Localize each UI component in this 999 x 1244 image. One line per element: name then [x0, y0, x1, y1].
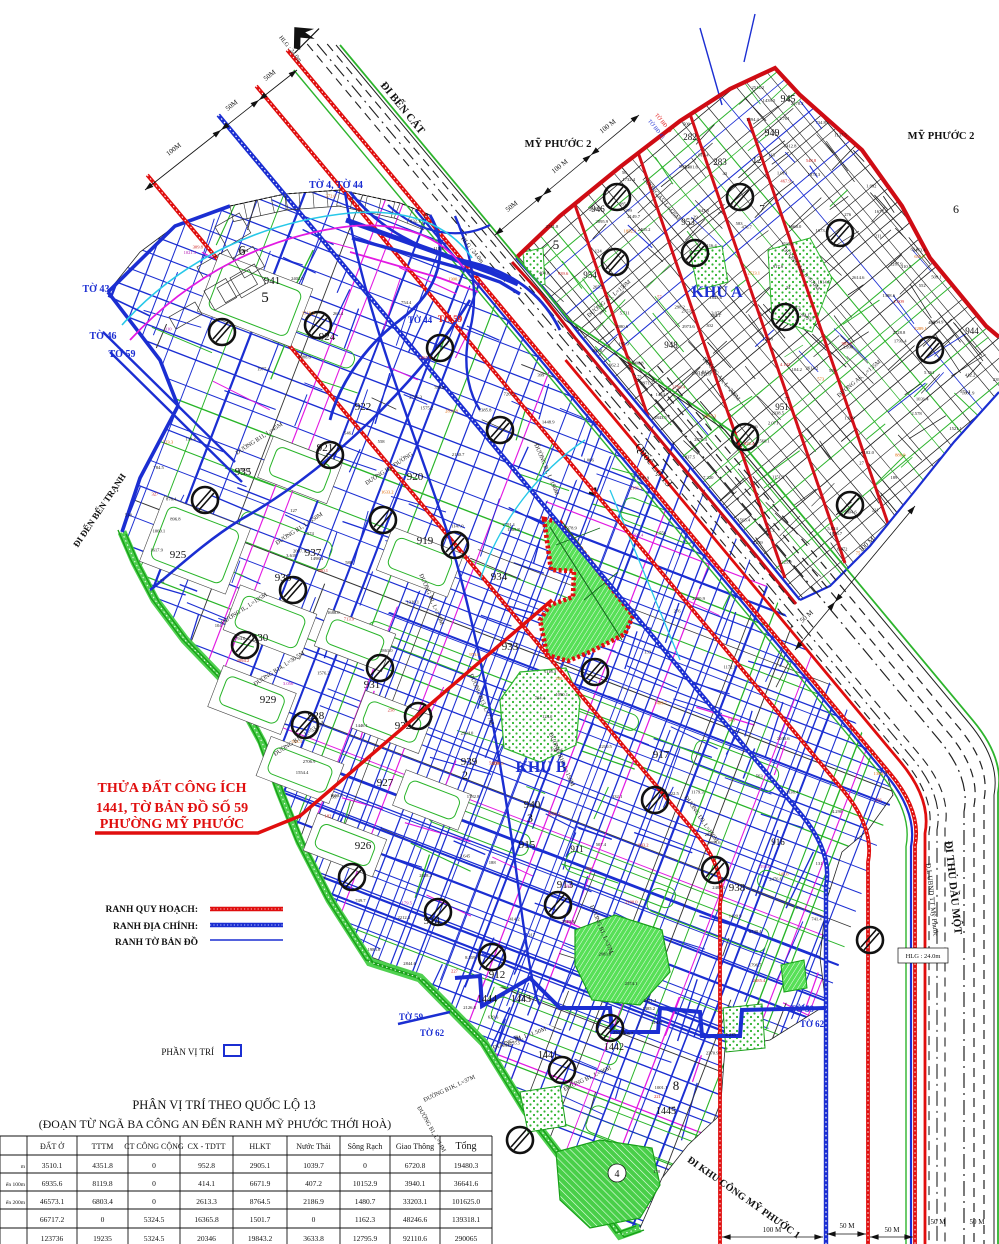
svg-text:2405.2: 2405.2 [638, 227, 651, 232]
svg-text:2.259: 2.259 [752, 540, 763, 545]
svg-text:CX - TDTT: CX - TDTT [187, 1142, 225, 1151]
svg-text:1568.1: 1568.1 [757, 439, 770, 444]
svg-text:6671.9: 6671.9 [250, 1179, 271, 1188]
svg-text:182: 182 [325, 814, 333, 819]
svg-text:188: 188 [489, 860, 497, 865]
svg-text:276: 276 [674, 609, 682, 614]
svg-text:2921.4: 2921.4 [644, 998, 657, 1003]
svg-text:19480.3: 19480.3 [454, 1161, 479, 1170]
svg-text:1300.2: 1300.2 [448, 277, 461, 282]
svg-text:920: 920 [407, 471, 424, 483]
svg-text:917.6: 917.6 [773, 264, 784, 269]
svg-text:399: 399 [537, 372, 545, 377]
svg-text:56: 56 [622, 170, 627, 175]
svg-text:2876.4: 2876.4 [694, 437, 707, 442]
svg-text:588: 588 [345, 560, 353, 565]
svg-text:PHÂN VỊ TRÍ THEO QUỐC LỘ 13: PHÂN VỊ TRÍ THEO QUỐC LỘ 13 [132, 1097, 315, 1112]
svg-text:RANH ĐỊA CHÍNH:: RANH ĐỊA CHÍNH: [113, 920, 198, 932]
svg-text:1732.4: 1732.4 [622, 177, 635, 182]
svg-text:2500.4: 2500.4 [237, 467, 250, 472]
svg-text:1182.0: 1182.0 [861, 450, 874, 455]
svg-text:5: 5 [261, 290, 269, 306]
svg-text:1.092: 1.092 [866, 184, 877, 189]
svg-text:3: 3 [527, 811, 533, 825]
svg-text:1441, TỜ BẢN ĐỒ SỐ 59: 1441, TỜ BẢN ĐỒ SỐ 59 [96, 798, 248, 816]
svg-text:930: 930 [252, 632, 269, 644]
svg-text:1576.2: 1576.2 [317, 671, 330, 676]
svg-text:0: 0 [152, 1197, 156, 1206]
svg-text:m: m [21, 1164, 26, 1170]
svg-text:127: 127 [290, 508, 298, 513]
svg-text:1521.1: 1521.1 [949, 426, 962, 431]
svg-text:917: 917 [653, 749, 670, 761]
svg-text:2149.7: 2149.7 [627, 214, 640, 219]
svg-text:916: 916 [771, 837, 785, 847]
svg-text:2859.8: 2859.8 [445, 408, 458, 413]
svg-text:1446.1: 1446.1 [355, 723, 368, 728]
svg-text:563: 563 [756, 773, 764, 778]
svg-text:3.056: 3.056 [283, 681, 294, 686]
svg-text:1519.2: 1519.2 [302, 310, 315, 315]
svg-text:1006.8: 1006.8 [631, 360, 644, 365]
svg-text:265.2: 265.2 [593, 285, 604, 290]
svg-text:2290.9: 2290.9 [692, 596, 705, 601]
svg-text:12795.9: 12795.9 [353, 1234, 378, 1243]
svg-text:2402.5: 2402.5 [291, 276, 304, 281]
svg-text:ến 100m: ến 100m [6, 1181, 26, 1188]
svg-text:CT CÔNG CỘNG: CT CÔNG CỘNG [124, 1141, 184, 1151]
svg-text:507.4: 507.4 [596, 842, 607, 847]
svg-text:404.8: 404.8 [539, 271, 550, 276]
svg-text:921: 921 [317, 442, 334, 454]
svg-text:34: 34 [786, 285, 791, 290]
svg-text:1.009: 1.009 [894, 299, 905, 304]
svg-text:1021.5: 1021.5 [184, 250, 197, 255]
svg-text:46573.1: 46573.1 [40, 1197, 65, 1206]
svg-text:100 M: 100 M [763, 1226, 782, 1234]
svg-text:12: 12 [753, 155, 762, 165]
svg-text:500: 500 [683, 122, 691, 127]
svg-text:HLKT: HLKT [249, 1142, 270, 1151]
svg-text:5: 5 [553, 237, 560, 252]
svg-text:939.6: 939.6 [558, 271, 569, 276]
svg-text:2130.7: 2130.7 [452, 452, 465, 457]
svg-text:8119.8: 8119.8 [92, 1179, 113, 1188]
svg-text:1782.8: 1782.8 [467, 794, 480, 799]
svg-text:2225.9: 2225.9 [779, 560, 792, 565]
svg-text:734.8: 734.8 [815, 120, 826, 125]
svg-text:282: 282 [683, 132, 697, 142]
svg-text:4.142: 4.142 [780, 362, 791, 367]
svg-text:993.2: 993.2 [679, 164, 690, 169]
svg-text:927: 927 [377, 777, 394, 789]
svg-text:1470.9: 1470.9 [637, 476, 650, 481]
svg-text:123736: 123736 [41, 1234, 64, 1243]
svg-text:66717.2: 66717.2 [40, 1215, 65, 1224]
svg-text:1443: 1443 [511, 994, 531, 1005]
svg-text:221: 221 [654, 1094, 662, 1099]
svg-text:929: 929 [260, 694, 277, 706]
svg-text:934: 934 [491, 571, 508, 583]
svg-text:843.2: 843.2 [638, 843, 649, 848]
svg-text:2578.2: 2578.2 [791, 101, 804, 106]
svg-text:948: 948 [664, 340, 678, 350]
svg-text:1663.3: 1663.3 [330, 793, 343, 798]
svg-text:1073.4: 1073.4 [815, 228, 828, 233]
svg-text:115: 115 [669, 1106, 676, 1111]
svg-text:2028.3: 2028.3 [419, 873, 432, 878]
svg-text:ến 200m: ến 200m [6, 1199, 26, 1206]
svg-text:922: 922 [355, 401, 372, 413]
svg-text:2101.1: 2101.1 [630, 486, 643, 491]
svg-text:940: 940 [524, 799, 541, 811]
svg-text:2973.6: 2973.6 [682, 324, 695, 329]
svg-text:1039.7: 1039.7 [303, 1161, 324, 1170]
svg-text:2370.9: 2370.9 [706, 1051, 719, 1056]
svg-text:124.0: 124.0 [542, 714, 553, 719]
svg-text:912: 912 [489, 969, 506, 981]
svg-text:2929.5: 2929.5 [562, 919, 575, 924]
svg-text:7.220: 7.220 [703, 475, 714, 480]
svg-text:5.711: 5.711 [620, 311, 631, 316]
svg-text:276: 276 [844, 212, 852, 217]
svg-text:239.4: 239.4 [993, 377, 999, 382]
svg-text:1845.6: 1845.6 [709, 295, 722, 300]
svg-text:832.1: 832.1 [410, 219, 421, 224]
svg-text:2971.7: 2971.7 [641, 381, 654, 386]
svg-text:221: 221 [872, 507, 880, 512]
svg-text:10152.9: 10152.9 [353, 1179, 378, 1188]
svg-text:1442: 1442 [604, 1042, 624, 1053]
svg-text:622.5: 622.5 [668, 791, 679, 796]
svg-text:2476.6: 2476.6 [769, 877, 782, 882]
svg-text:1480.7: 1480.7 [355, 1197, 376, 1206]
svg-text:TỜ 44: TỜ 44 [408, 315, 433, 325]
svg-text:139318.1: 139318.1 [452, 1215, 480, 1224]
svg-text:1434.7: 1434.7 [656, 392, 669, 397]
svg-text:1444: 1444 [477, 994, 497, 1005]
svg-text:199: 199 [625, 208, 633, 213]
svg-text:TỜ 4, TỜ 44: TỜ 4, TỜ 44 [309, 179, 363, 191]
svg-text:2088.6: 2088.6 [298, 355, 311, 360]
svg-text:8.559: 8.559 [465, 955, 476, 960]
svg-text:250.7: 250.7 [555, 676, 566, 681]
svg-text:290065: 290065 [455, 1234, 478, 1243]
svg-text:8: 8 [673, 1078, 680, 1093]
svg-text:3.645: 3.645 [460, 853, 471, 858]
svg-text:19843.2: 19843.2 [248, 1234, 273, 1243]
svg-text:1514.5: 1514.5 [817, 280, 830, 285]
svg-text:911: 911 [570, 844, 583, 854]
svg-text:3.072: 3.072 [711, 311, 722, 316]
svg-text:691.4: 691.4 [633, 533, 644, 538]
svg-text:2.578: 2.578 [911, 411, 922, 416]
svg-text:1836.7: 1836.7 [829, 531, 842, 536]
svg-text:4.235: 4.235 [725, 1032, 736, 1037]
svg-text:914: 914 [424, 915, 441, 927]
svg-text:72: 72 [160, 578, 165, 583]
svg-text:ĐẤT Ở: ĐẤT Ở [40, 1141, 65, 1151]
svg-text:915: 915 [519, 839, 536, 851]
svg-text:4351.8: 4351.8 [92, 1161, 113, 1170]
svg-text:662.2: 662.2 [609, 363, 620, 368]
svg-text:1795.9: 1795.9 [781, 242, 794, 247]
svg-text:81.4: 81.4 [910, 247, 919, 252]
svg-text:1565.8: 1565.8 [507, 527, 520, 532]
svg-text:6720.8: 6720.8 [405, 1161, 426, 1170]
svg-text:2895.9: 2895.9 [595, 219, 608, 224]
svg-text:546: 546 [344, 431, 352, 436]
svg-text:1448.9: 1448.9 [542, 420, 555, 425]
svg-text:5.761: 5.761 [924, 370, 935, 375]
svg-text:258: 258 [388, 707, 396, 712]
svg-text:179.5: 179.5 [402, 900, 413, 905]
svg-text:573: 573 [817, 377, 825, 382]
svg-text:2: 2 [462, 768, 468, 782]
svg-text:(ĐOẠN TỪ NGÃ BA CÔNG AN ĐẾN RA: (ĐOẠN TỪ NGÃ BA CÔNG AN ĐẾN RANH MỸ PHƯỚ… [39, 1116, 392, 1131]
svg-text:0: 0 [101, 1215, 105, 1224]
svg-text:467.9: 467.9 [780, 179, 791, 184]
svg-text:2190.0: 2190.0 [625, 900, 638, 905]
svg-text:1554.4: 1554.4 [296, 770, 309, 775]
svg-text:2693.7: 2693.7 [589, 207, 602, 212]
svg-text:Giao Thông: Giao Thông [396, 1142, 434, 1151]
svg-text:720.6: 720.6 [804, 315, 815, 320]
svg-text:332.1: 332.1 [612, 794, 623, 799]
svg-text:283: 283 [713, 157, 727, 167]
svg-text:414.2: 414.2 [509, 917, 520, 922]
svg-text:1385.8: 1385.8 [479, 408, 492, 413]
svg-text:518: 518 [125, 513, 133, 518]
svg-text:924: 924 [319, 331, 336, 343]
svg-text:926: 926 [355, 840, 372, 852]
svg-text:50 M: 50 M [931, 1218, 947, 1226]
svg-text:6.472: 6.472 [837, 547, 848, 552]
svg-text:1420.9: 1420.9 [729, 913, 742, 918]
svg-text:2378.9: 2378.9 [564, 526, 577, 531]
svg-text:5.850: 5.850 [489, 761, 500, 766]
svg-text:1633.2: 1633.2 [381, 490, 394, 495]
svg-text:583: 583 [736, 221, 744, 226]
svg-text:6935.6: 6935.6 [42, 1179, 63, 1188]
svg-text:925: 925 [170, 549, 187, 561]
svg-text:1409.7: 1409.7 [654, 701, 667, 706]
svg-text:3940.1: 3940.1 [405, 1179, 426, 1188]
svg-text:1195.0: 1195.0 [758, 864, 771, 869]
svg-text:1575.2: 1575.2 [420, 405, 433, 410]
svg-text:1796.7: 1796.7 [749, 962, 762, 967]
svg-text:170: 170 [653, 1169, 661, 1174]
svg-text:504: 504 [564, 884, 572, 889]
svg-text:876.4: 876.4 [166, 497, 177, 502]
svg-text:936: 936 [275, 572, 292, 584]
svg-text:309.8: 309.8 [193, 244, 204, 249]
svg-text:1861.0: 1861.0 [380, 648, 393, 653]
svg-text:Tổng: Tổng [455, 1141, 476, 1152]
svg-text:1.348: 1.348 [762, 337, 773, 342]
svg-text:1.619: 1.619 [844, 416, 855, 421]
svg-text:813.4: 813.4 [698, 152, 709, 157]
svg-text:886.0: 886.0 [895, 453, 906, 458]
svg-text:788.8: 788.8 [434, 385, 445, 390]
svg-text:1791.4: 1791.4 [894, 338, 907, 343]
svg-text:973.6: 973.6 [469, 652, 480, 657]
svg-text:MỸ PHƯỚC 2: MỸ PHƯỚC 2 [525, 138, 592, 150]
svg-text:1688.0: 1688.0 [327, 610, 340, 615]
svg-text:2753.1: 2753.1 [681, 309, 694, 314]
svg-text:0: 0 [152, 1179, 156, 1188]
svg-text:256: 256 [875, 797, 883, 802]
svg-text:Sông Rạch: Sông Rạch [348, 1142, 383, 1151]
svg-text:1617.9: 1617.9 [150, 547, 163, 552]
svg-text:0: 0 [312, 1215, 316, 1224]
svg-text:RANH QUY HOẠCH:: RANH QUY HOẠCH: [105, 905, 198, 915]
svg-text:TTTM: TTTM [92, 1142, 114, 1151]
svg-text:302: 302 [706, 323, 714, 328]
svg-text:5324.5: 5324.5 [144, 1234, 165, 1243]
svg-text:211: 211 [875, 233, 882, 238]
svg-text:2514.2: 2514.2 [751, 85, 764, 90]
svg-text:1.013: 1.013 [777, 171, 788, 176]
svg-text:2094.2: 2094.2 [237, 658, 250, 663]
svg-text:1172.1: 1172.1 [723, 665, 736, 670]
svg-text:749.7: 749.7 [355, 898, 366, 903]
svg-text:552: 552 [919, 283, 927, 288]
svg-text:2614.2: 2614.2 [806, 366, 819, 371]
svg-text:327: 327 [151, 491, 159, 496]
svg-text:919: 919 [417, 535, 434, 547]
svg-text:0: 0 [363, 1161, 367, 1170]
svg-text:1394.4: 1394.4 [746, 117, 759, 122]
svg-text:1485.2: 1485.2 [642, 1006, 655, 1011]
svg-text:298.2: 298.2 [675, 304, 686, 309]
svg-text:1060.1: 1060.1 [153, 528, 166, 533]
svg-text:1668.0: 1668.0 [789, 224, 802, 229]
svg-text:2905.1: 2905.1 [250, 1161, 271, 1170]
svg-text:3633.8: 3633.8 [303, 1234, 324, 1243]
svg-text:48246.6: 48246.6 [403, 1215, 428, 1224]
svg-text:952.8: 952.8 [198, 1161, 215, 1170]
svg-text:558: 558 [378, 439, 386, 444]
svg-text:906.7: 906.7 [623, 1031, 634, 1036]
svg-text:20346: 20346 [197, 1234, 216, 1243]
svg-text:285: 285 [619, 201, 627, 206]
svg-text:656.0: 656.0 [914, 254, 925, 259]
svg-text:1388.6: 1388.6 [882, 293, 895, 298]
svg-text:2186.9: 2186.9 [303, 1197, 324, 1206]
svg-text:822.4: 822.4 [744, 441, 755, 446]
svg-text:1031.4: 1031.4 [916, 397, 929, 402]
svg-text:TỜ 59: TỜ 59 [790, 1004, 815, 1014]
svg-text:Nước Thải: Nước Thải [296, 1142, 331, 1151]
svg-text:131: 131 [816, 861, 824, 866]
svg-text:837.5: 837.5 [685, 454, 696, 459]
svg-text:949: 949 [765, 128, 780, 139]
svg-text:204.6: 204.6 [474, 282, 485, 287]
svg-text:1179.3: 1179.3 [691, 790, 704, 795]
svg-text:360.0: 360.0 [592, 348, 603, 353]
svg-text:57: 57 [657, 294, 662, 299]
svg-text:6803.4: 6803.4 [92, 1197, 113, 1206]
svg-text:1852.9: 1852.9 [624, 229, 637, 234]
svg-text:3510.1: 3510.1 [42, 1161, 63, 1170]
svg-text:227: 227 [451, 969, 459, 974]
svg-text:3.998: 3.998 [843, 345, 854, 350]
svg-text:43: 43 [723, 171, 728, 176]
svg-text:896.8: 896.8 [170, 516, 181, 521]
svg-text:TỜ 46: TỜ 46 [90, 330, 117, 342]
svg-text:1412.8: 1412.8 [784, 144, 797, 149]
svg-text:19235: 19235 [93, 1234, 112, 1243]
svg-text:726.5: 726.5 [504, 392, 515, 397]
svg-text:1439.5: 1439.5 [763, 98, 776, 103]
svg-text:THỬA ĐẤT CÔNG ÍCH: THỬA ĐẤT CÔNG ÍCH [98, 779, 247, 796]
svg-text:2614.6: 2614.6 [852, 275, 865, 280]
svg-text:1316.1: 1316.1 [406, 600, 419, 605]
svg-text:511.2: 511.2 [765, 527, 776, 532]
svg-text:713.9: 713.9 [344, 617, 355, 622]
svg-text:931: 931 [364, 679, 381, 691]
svg-text:1.556: 1.556 [656, 531, 667, 536]
svg-text:2.071: 2.071 [768, 421, 779, 426]
svg-text:0: 0 [152, 1161, 156, 1170]
svg-text:2485.4: 2485.4 [753, 978, 766, 983]
svg-text:6: 6 [953, 202, 959, 216]
svg-text:5.914: 5.914 [238, 248, 249, 253]
svg-text:741.4: 741.4 [811, 917, 822, 922]
svg-text:317: 317 [528, 932, 536, 937]
svg-text:938: 938 [729, 882, 746, 894]
svg-text:MỸ PHƯỚC 2: MỸ PHƯỚC 2 [908, 130, 975, 142]
svg-text:548.8: 548.8 [806, 158, 817, 163]
svg-text:1977.4: 1977.4 [257, 367, 270, 372]
svg-text:2741.8: 2741.8 [546, 224, 559, 229]
svg-text:704.4: 704.4 [535, 695, 546, 700]
svg-text:2212.3: 2212.3 [397, 915, 410, 920]
svg-text:647.3: 647.3 [699, 208, 710, 213]
svg-text:36641.6: 36641.6 [454, 1179, 479, 1188]
svg-text:2497.3: 2497.3 [704, 414, 717, 419]
svg-text:130.4: 130.4 [185, 436, 196, 441]
svg-text:118.4: 118.4 [433, 246, 444, 251]
svg-text:4.290: 4.290 [832, 809, 843, 814]
svg-text:1441: 1441 [538, 1050, 558, 1061]
svg-text:50 M: 50 M [970, 1218, 986, 1226]
svg-text:509.1: 509.1 [931, 275, 942, 280]
svg-text:1090.1: 1090.1 [555, 692, 568, 697]
svg-text:104.2: 104.2 [792, 367, 803, 372]
svg-text:2040.6: 2040.6 [777, 736, 790, 741]
svg-text:2210.5: 2210.5 [599, 744, 612, 749]
svg-text:414.0: 414.0 [651, 1020, 662, 1025]
svg-text:27: 27 [859, 461, 864, 466]
svg-text:2482.3: 2482.3 [712, 885, 725, 890]
svg-text:493: 493 [585, 866, 593, 871]
svg-text:153: 153 [644, 649, 652, 654]
svg-text:2080.6: 2080.6 [615, 324, 628, 329]
svg-text:498: 498 [928, 320, 936, 325]
svg-text:414.1: 414.1 [198, 1179, 215, 1188]
svg-text:TỜ 59: TỜ 59 [438, 314, 463, 324]
svg-text:412.2: 412.2 [965, 373, 976, 378]
svg-text:1897.6: 1897.6 [691, 371, 704, 376]
svg-text:92110.6: 92110.6 [403, 1234, 427, 1243]
svg-text:941: 941 [264, 275, 281, 287]
svg-text:7: 7 [759, 203, 765, 215]
svg-text:16365.8: 16365.8 [194, 1215, 219, 1224]
svg-text:TỜ 43: TỜ 43 [83, 283, 110, 295]
svg-text:2844.6: 2844.6 [403, 961, 416, 966]
